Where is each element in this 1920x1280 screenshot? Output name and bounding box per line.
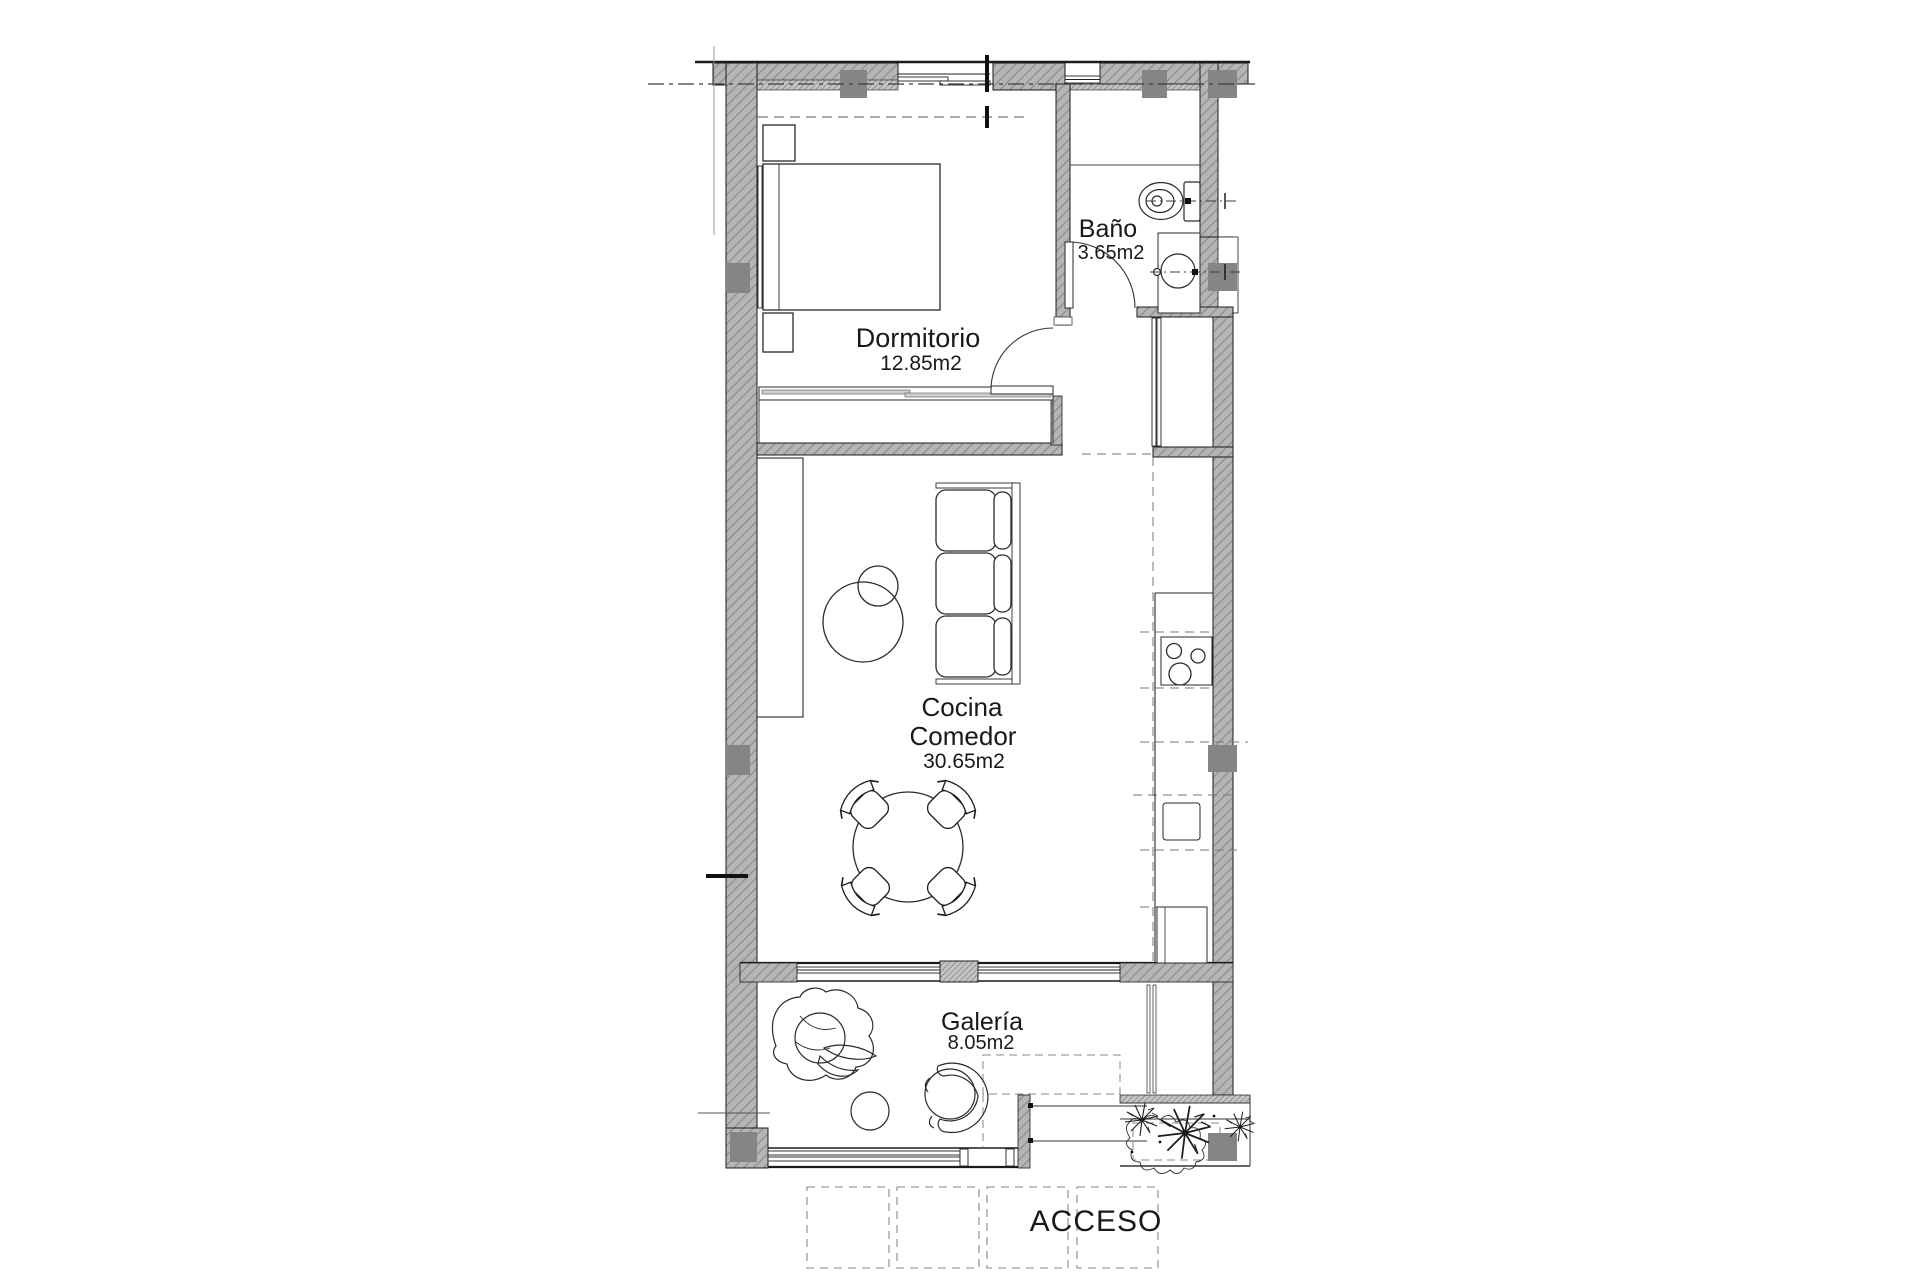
lounge-plant xyxy=(772,988,876,1080)
room-area-cocina: 30.65m2 xyxy=(923,750,1005,773)
pillar-window xyxy=(940,961,978,982)
room-area-dormitorio: 12.85m2 xyxy=(880,352,962,375)
cooktop xyxy=(1161,637,1212,685)
window-top-1a xyxy=(898,77,948,81)
window-galeria-a xyxy=(768,1151,960,1155)
sideboard xyxy=(757,458,803,717)
floor-plan: Dormitorio 12.85m2 Baño 3.65m2 Cocina Co… xyxy=(0,0,1920,1280)
door-jamb-galeria-l xyxy=(960,1149,968,1166)
nightstand xyxy=(763,125,795,161)
door-jamb-galeria-r xyxy=(1006,1149,1014,1166)
wall-recess xyxy=(1153,447,1233,457)
wall-galeria-top-left xyxy=(740,963,797,982)
side-table-circle xyxy=(858,566,898,606)
wall-galeria-top-right xyxy=(1120,963,1233,982)
entry-sidelight-b xyxy=(1153,985,1156,1093)
bed xyxy=(763,164,940,310)
wall-top-mid xyxy=(993,63,1065,90)
window-galeria-b xyxy=(768,1157,960,1161)
fridge xyxy=(1157,907,1207,963)
door-leaf-bath xyxy=(1065,242,1073,308)
window-hall-b xyxy=(1157,318,1161,446)
room-label-bano: Baño xyxy=(1079,215,1137,243)
room-labels: Dormitorio 12.85m2 Baño 3.65m2 Cocina Co… xyxy=(856,215,1163,1238)
room-area-galeria: 8.05m2 xyxy=(948,1032,1015,1054)
room-area-bano: 3.65m2 xyxy=(1078,242,1145,264)
wall-bedroom-kitchen xyxy=(757,443,1062,455)
step-node xyxy=(1028,1138,1033,1143)
sliding-panel xyxy=(762,390,910,394)
wall-entry-strip xyxy=(1120,1095,1250,1103)
side-table xyxy=(851,1092,889,1130)
door-leaf-bedroom xyxy=(991,386,1053,394)
nightstand xyxy=(763,313,793,352)
window-hall-a xyxy=(1152,318,1156,446)
room-label-cocina: Cocina xyxy=(922,692,1003,722)
bed-headboard xyxy=(758,166,762,308)
label-acceso: ACCESO xyxy=(1030,1205,1163,1238)
room-label-dormitorio: Dormitorio xyxy=(856,323,981,353)
door-arc-bedroom xyxy=(991,328,1053,390)
paving-tile xyxy=(807,1187,889,1268)
room-label-comedor: Comedor xyxy=(910,721,1017,751)
axis-node xyxy=(1185,198,1191,204)
door-jamb-bedroom xyxy=(1054,317,1072,325)
kitchen-sink xyxy=(1163,803,1200,840)
step-node xyxy=(1028,1103,1033,1108)
bedroom-furniture xyxy=(758,125,1053,443)
wall-top-bath-liner xyxy=(1070,84,1200,90)
dashed-canopy xyxy=(983,1055,1120,1094)
paving-tile xyxy=(897,1187,979,1268)
armchair-circle xyxy=(823,582,903,662)
axis-node xyxy=(1192,269,1198,275)
wall-top-left-liner xyxy=(752,80,898,90)
shell-armchair xyxy=(925,1063,988,1132)
floor-plan-page: Dormitorio 12.85m2 Baño 3.65m2 Cocina Co… xyxy=(0,0,1920,1280)
wall-left xyxy=(726,63,757,1168)
entry-sidelight-a xyxy=(1147,985,1150,1093)
sofa xyxy=(936,483,1020,684)
